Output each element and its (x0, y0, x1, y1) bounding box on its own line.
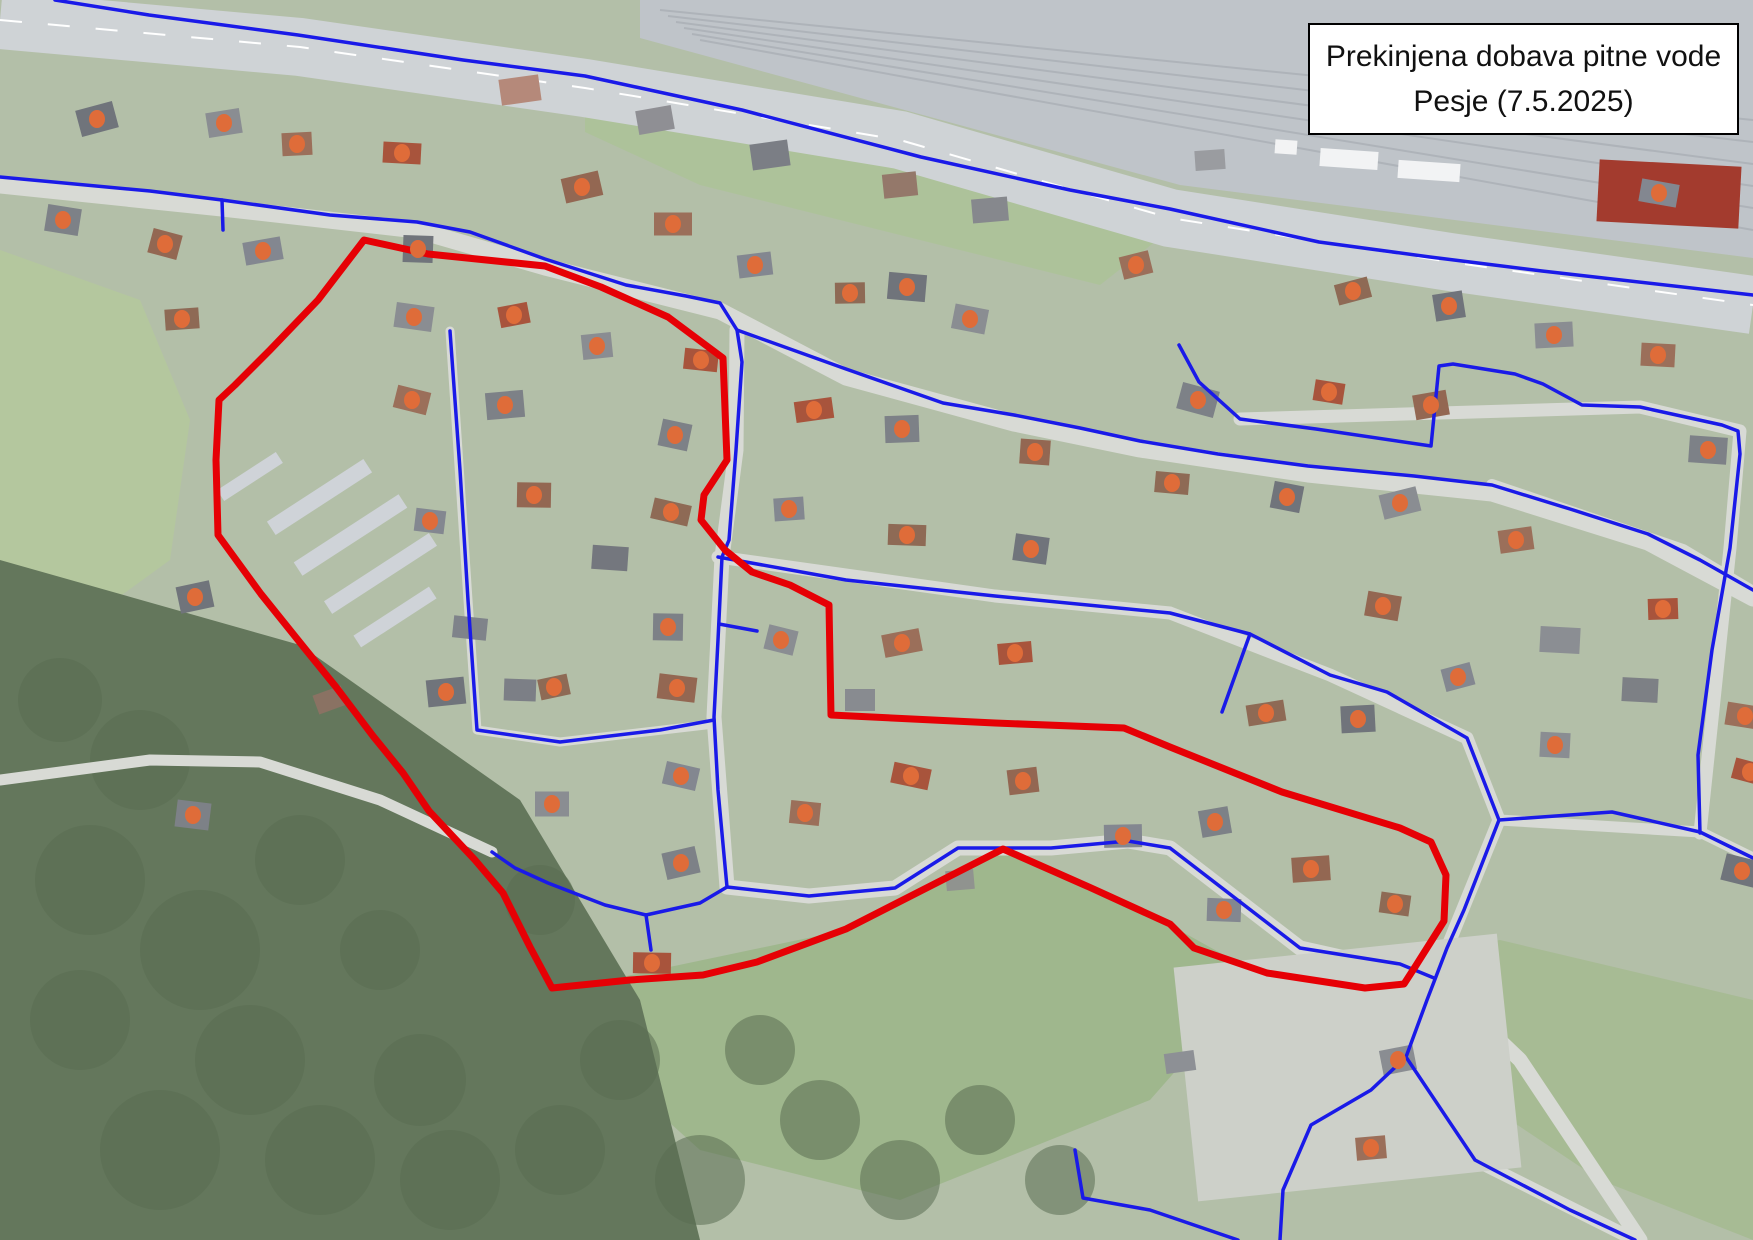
water-connection-marker (185, 806, 201, 824)
house (1621, 677, 1658, 703)
water-connection-marker (1450, 668, 1466, 686)
water-connection-marker (806, 401, 822, 419)
tree-canopy (195, 1005, 305, 1115)
water-connection-marker (55, 211, 71, 229)
water-connection-marker (644, 954, 660, 972)
water-connection-marker (1128, 256, 1144, 274)
water-connection-marker (589, 337, 605, 355)
water-connection-marker (546, 678, 562, 696)
tree-canopy (100, 1090, 220, 1210)
bus (1275, 139, 1298, 155)
water-connection-marker (1350, 710, 1366, 728)
water-connection-marker (174, 310, 190, 328)
water-connection-marker (1423, 396, 1439, 414)
water-connection-marker (255, 242, 271, 260)
water-connection-marker (1441, 297, 1457, 315)
water-connection-marker (574, 178, 590, 196)
house (498, 74, 541, 105)
water-connection-marker (216, 114, 232, 132)
map-title-box: Prekinjena dobava pitne vode Pesje (7.5.… (1308, 23, 1739, 135)
water-connection-marker (1279, 488, 1295, 506)
water-connection-marker (962, 310, 978, 328)
water-connection-marker (544, 795, 560, 813)
house (882, 171, 918, 198)
water-connection-marker (894, 420, 910, 438)
water-connection-marker (781, 500, 797, 518)
water-connection-marker (903, 767, 919, 785)
water-connection-marker (1363, 1139, 1379, 1157)
water-connection-marker (773, 631, 789, 649)
tree-canopy (18, 658, 102, 742)
tree-canopy (860, 1140, 940, 1220)
water-connection-marker (438, 683, 454, 701)
water-connection-marker (506, 306, 522, 324)
water-pipeline (222, 200, 223, 230)
water-connection-marker (1007, 644, 1023, 662)
water-connection-marker (693, 351, 709, 369)
map-viewport[interactable]: Prekinjena dobava pitne vode Pesje (7.5.… (0, 0, 1753, 1240)
house (1164, 1050, 1196, 1074)
water-connection-marker (1190, 391, 1206, 409)
water-connection-marker (669, 679, 685, 697)
water-connection-marker (1650, 346, 1666, 364)
water-connection-marker (894, 634, 910, 652)
water-connection-marker (1303, 860, 1319, 878)
water-connection-marker (1164, 474, 1180, 492)
water-connection-marker (660, 618, 676, 636)
water-connection-marker (667, 426, 683, 444)
water-connection-marker (1345, 282, 1361, 300)
house (504, 678, 537, 701)
water-connection-marker (1115, 827, 1131, 845)
tree-canopy (35, 825, 145, 935)
water-connection-marker (1546, 326, 1562, 344)
water-connection-marker (1027, 443, 1043, 461)
map-title-line1: Prekinjena dobava pitne vode (1310, 34, 1737, 79)
water-connection-marker (422, 512, 438, 530)
house (845, 689, 875, 711)
water-connection-marker (406, 308, 422, 326)
water-connection-marker (1734, 862, 1750, 880)
tree-canopy (340, 910, 420, 990)
water-connection-marker (1655, 600, 1671, 618)
tree-canopy (140, 890, 260, 1010)
water-connection-marker (410, 240, 426, 258)
house (1194, 149, 1225, 171)
water-connection-marker (1651, 184, 1667, 202)
sports-court (1174, 934, 1522, 1202)
water-connection-marker (1321, 383, 1337, 401)
water-connection-marker (899, 526, 915, 544)
water-connection-marker (404, 391, 420, 409)
water-connection-marker (157, 235, 173, 253)
water-connection-marker (497, 396, 513, 414)
tree-canopy (780, 1080, 860, 1160)
tree-canopy (30, 970, 130, 1070)
water-connection-marker (394, 144, 410, 162)
water-connection-marker (1207, 813, 1223, 831)
water-connection-marker (89, 110, 105, 128)
water-connection-marker (673, 767, 689, 785)
water-connection-marker (663, 503, 679, 521)
water-connection-marker (747, 256, 763, 274)
tree-canopy (400, 1130, 500, 1230)
tree-canopy (1025, 1145, 1095, 1215)
water-connection-marker (1390, 1051, 1406, 1069)
water-connection-marker (842, 284, 858, 302)
house (971, 196, 1009, 223)
water-connection-marker (1258, 704, 1274, 722)
map-title-line2: Pesje (7.5.2025) (1310, 79, 1737, 124)
tree-canopy (255, 815, 345, 905)
water-connection-marker (187, 588, 203, 606)
water-connection-marker (1737, 707, 1753, 725)
house (749, 139, 790, 170)
tree-canopy (725, 1015, 795, 1085)
tree-canopy (265, 1105, 375, 1215)
water-connection-marker (1375, 597, 1391, 615)
water-connection-marker (289, 135, 305, 153)
house (1539, 626, 1580, 654)
tree-canopy (515, 1105, 605, 1195)
water-connection-marker (1015, 772, 1031, 790)
house (591, 545, 629, 571)
water-connection-marker (899, 278, 915, 296)
water-connection-marker (673, 854, 689, 872)
water-connection-marker (1547, 736, 1563, 754)
water-connection-marker (1392, 494, 1408, 512)
water-connection-marker (1700, 441, 1716, 459)
map-canvas (0, 0, 1753, 1240)
water-connection-marker (1387, 895, 1403, 913)
water-connection-marker (1023, 540, 1039, 558)
water-connection-marker (665, 215, 681, 233)
water-connection-marker (797, 804, 813, 822)
water-connection-marker (526, 486, 542, 504)
tree-canopy (580, 1020, 660, 1100)
tree-canopy (374, 1034, 466, 1126)
water-connection-marker (1508, 531, 1524, 549)
water-connection-marker (1216, 901, 1232, 919)
tree-canopy (655, 1135, 745, 1225)
tree-canopy (945, 1085, 1015, 1155)
